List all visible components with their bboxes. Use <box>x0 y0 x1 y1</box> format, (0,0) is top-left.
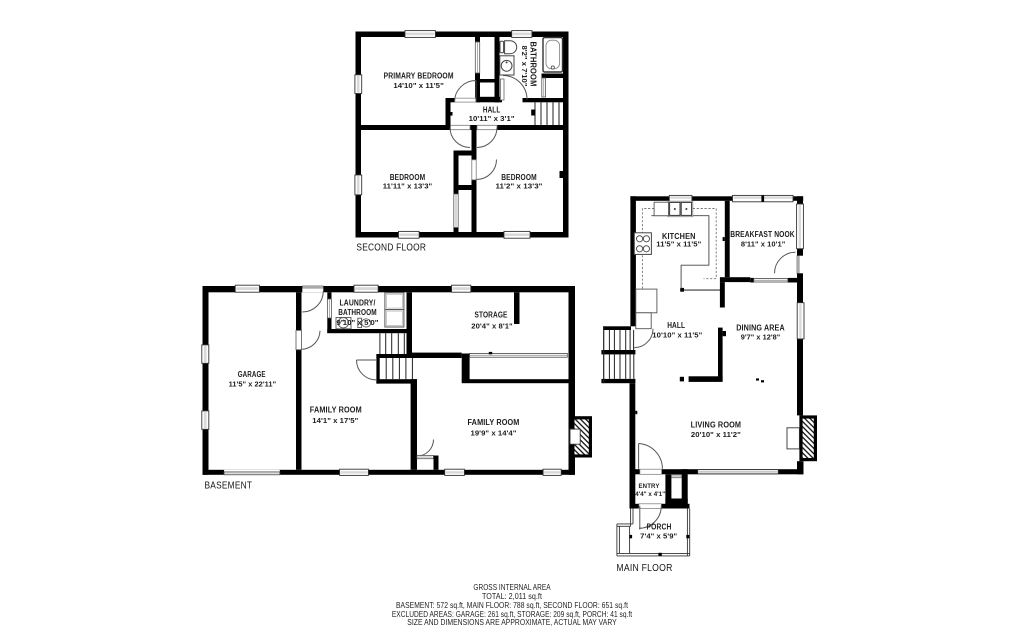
svg-text:PRIMARY BEDROOM: PRIMARY BEDROOM <box>384 72 454 81</box>
svg-text:10'11" x 3'1": 10'11" x 3'1" <box>469 114 515 123</box>
svg-text:11'11" x 13'3": 11'11" x 13'3" <box>383 182 433 191</box>
svg-text:14'10" x 11'5": 14'10" x 11'5" <box>393 81 444 90</box>
svg-text:11'5" x 22'11": 11'5" x 22'11" <box>229 379 277 388</box>
svg-text:19'9" x 14'4": 19'9" x 14'4" <box>471 429 517 438</box>
svg-text:HALL: HALL <box>667 321 685 330</box>
svg-text:8'11" x 10'1": 8'11" x 10'1" <box>741 239 786 248</box>
svg-text:ENTRY: ENTRY <box>639 483 660 490</box>
svg-text:TOTAL: 2,011 sq.ft: TOTAL: 2,011 sq.ft <box>482 592 543 601</box>
svg-text:BREAKFAST NOOK: BREAKFAST NOOK <box>730 230 795 239</box>
svg-text:11'5" x 11'5": 11'5" x 11'5" <box>656 240 701 249</box>
svg-text:PORCH: PORCH <box>647 523 672 532</box>
svg-text:FAMILY ROOM: FAMILY ROOM <box>468 418 520 427</box>
svg-text:FAMILY ROOM: FAMILY ROOM <box>310 405 362 414</box>
svg-text:SIZE AND DIMENSIONS ARE APPROX: SIZE AND DIMENSIONS ARE APPROXIMATE, ACT… <box>407 618 617 627</box>
svg-text:7'4" x 5'9": 7'4" x 5'9" <box>640 532 677 541</box>
svg-text:GROSS INTERNAL AREA: GROSS INTERNAL AREA <box>473 583 551 592</box>
svg-text:9'10" x 5'0": 9'10" x 5'0" <box>337 318 379 327</box>
svg-text:LIVING ROOM: LIVING ROOM <box>691 421 742 430</box>
svg-text:20'4" x 8'1": 20'4" x 8'1" <box>471 321 513 330</box>
svg-text:20'10" x 11'2": 20'10" x 11'2" <box>691 430 741 439</box>
svg-text:11'2" x 13'3": 11'2" x 13'3" <box>496 182 543 191</box>
svg-text:4'4" x 4'1": 4'4" x 4'1" <box>635 491 665 498</box>
svg-text:9'7" x 12'8": 9'7" x 12'8" <box>741 332 781 341</box>
svg-text:DINING AREA: DINING AREA <box>736 324 785 333</box>
svg-text:10'10" x 11'5": 10'10" x 11'5" <box>652 330 702 339</box>
svg-text:GARAGE: GARAGE <box>238 370 266 379</box>
svg-text:BASEMENT: 572 sq.ft, MAIN FLOO: BASEMENT: 572 sq.ft, MAIN FLOOR: 788 sq.… <box>396 601 629 610</box>
svg-text:LAUNDRY/: LAUNDRY/ <box>340 298 377 307</box>
svg-text:SECOND FLOOR: SECOND FLOOR <box>356 242 426 254</box>
svg-text:MAIN FLOOR: MAIN FLOOR <box>616 562 672 574</box>
svg-text:14'1" x 17'5": 14'1" x 17'5" <box>312 416 358 425</box>
svg-text:BASEMENT: BASEMENT <box>205 479 253 491</box>
svg-text:BATHROOM: BATHROOM <box>338 308 377 317</box>
svg-text:8'2" x 7'10": 8'2" x 7'10" <box>520 46 529 87</box>
svg-text:STORAGE: STORAGE <box>475 310 508 319</box>
